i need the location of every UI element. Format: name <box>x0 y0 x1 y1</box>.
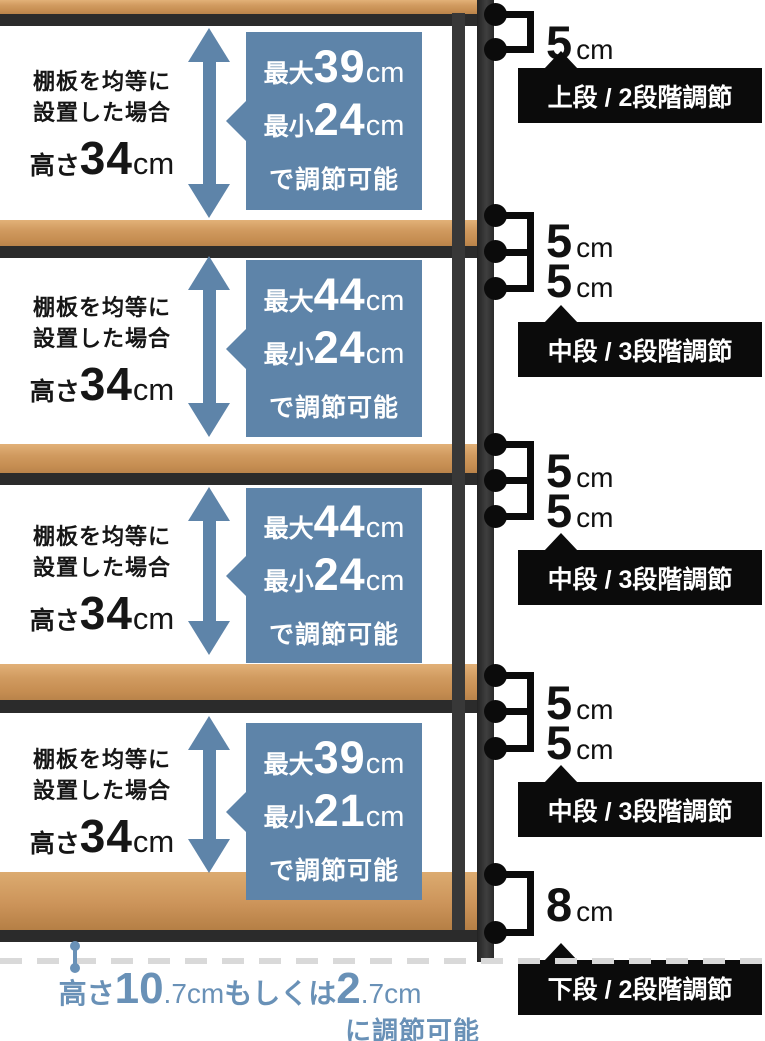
section-caption: 棚板を均等に 設置した場合 高さ34cm <box>22 744 182 871</box>
caption-line: 棚板を均等に <box>22 521 182 552</box>
height-unit: cm <box>133 372 174 407</box>
arrowhead-down-icon <box>188 184 230 218</box>
bracket-line <box>527 871 534 936</box>
gap-value: 5 <box>546 484 572 537</box>
max-height-line: 最大44cm <box>264 274 405 327</box>
height-unit: cm <box>133 601 174 636</box>
min-unit: cm <box>366 110 405 142</box>
arrowhead-up-icon <box>188 256 230 290</box>
tier-label: 下段 / 2段階調節 <box>548 970 733 1006</box>
min-value: 21 <box>314 785 366 836</box>
floor-note-connector: もしくは <box>224 978 336 1009</box>
bracket-line <box>527 212 534 292</box>
min-height-line: 最小21cm <box>264 790 405 843</box>
shelf-height-label: 高さ34cm <box>22 813 182 871</box>
adjustable-note: で調節可能 <box>269 388 399 424</box>
gap-unit: cm <box>576 502 613 533</box>
min-height-line: 最小24cm <box>264 99 405 152</box>
adjustment-info-box: 最大39cm 最小24cm で調節可能 <box>246 32 422 210</box>
height-prefix: 高さ <box>30 152 80 180</box>
tier-label-ribbon: 上段 / 2段階調節 <box>518 68 762 123</box>
bracket-line <box>527 441 534 520</box>
min-value: 24 <box>314 549 366 600</box>
caption-line: 設置した場合 <box>22 323 182 354</box>
shelf-height-label: 高さ34cm <box>22 590 182 648</box>
gap-unit: cm <box>576 34 613 65</box>
arrowhead-down-icon <box>188 839 230 873</box>
caption-line: 棚板を均等に <box>22 66 182 97</box>
pointer-notch-icon <box>226 555 247 597</box>
floor-note-value2: 2 <box>336 964 360 1013</box>
max-unit: cm <box>366 285 405 317</box>
double-arrow-icon <box>188 256 230 437</box>
tier-label: 中段 / 3段階調節 <box>548 560 733 596</box>
gap-unit: cm <box>576 734 613 765</box>
shelf-board <box>0 444 494 473</box>
shelf-height-label: 高さ34cm <box>22 361 182 419</box>
floor-adjustable-note: に調節可能 <box>345 1011 480 1041</box>
shelf-board <box>0 664 494 700</box>
max-value: 44 <box>314 496 366 547</box>
floor-note-suffix1: .7cm <box>164 978 225 1009</box>
double-arrow-icon <box>188 28 230 218</box>
max-label: 最大 <box>264 751 314 779</box>
shelf-frame-bar <box>0 930 483 942</box>
arrowhead-up-icon <box>188 716 230 750</box>
floor-note-prefix: 高さ <box>59 978 115 1009</box>
shelf-adjustment-infographic: 棚板を均等に 設置した場合 高さ34cm 最大39cm 最小24cm で調節可能… <box>0 0 765 1041</box>
height-value: 34 <box>80 358 133 410</box>
max-unit: cm <box>366 512 405 544</box>
max-label: 最大 <box>264 515 314 543</box>
min-label: 最小 <box>264 568 314 596</box>
adjustable-note: で調節可能 <box>269 851 399 887</box>
max-label: 最大 <box>264 288 314 316</box>
shelf-board <box>0 0 494 14</box>
adjustable-note: で調節可能 <box>269 615 399 651</box>
min-label: 最小 <box>264 804 314 832</box>
tier-label: 上段 / 2段階調節 <box>548 78 733 114</box>
height-prefix: 高さ <box>30 378 80 406</box>
section-caption: 棚板を均等に 設置した場合 高さ34cm <box>22 292 182 419</box>
arrowhead-down-icon <box>188 403 230 437</box>
tier-label-ribbon: 中段 / 3段階調節 <box>518 550 762 605</box>
bracket-line <box>527 11 534 53</box>
height-value: 34 <box>80 587 133 639</box>
double-arrow-icon <box>188 716 230 873</box>
pointer-notch-icon <box>226 328 247 370</box>
min-unit: cm <box>366 338 405 370</box>
arrow-shaft <box>203 748 216 841</box>
min-value: 24 <box>314 322 366 373</box>
height-prefix: 高さ <box>30 830 80 858</box>
tier-label: 中段 / 3段階調節 <box>548 792 733 828</box>
caption-line: 棚板を均等に <box>22 744 182 775</box>
caption-line: 棚板を均等に <box>22 292 182 323</box>
arrow-shaft <box>203 288 216 405</box>
max-unit: cm <box>366 57 405 89</box>
triangle-up-icon <box>544 765 578 783</box>
min-value: 24 <box>314 94 366 145</box>
max-value: 44 <box>314 269 366 320</box>
triangle-up-icon <box>544 51 578 69</box>
gap-value: 8 <box>546 878 572 931</box>
max-unit: cm <box>366 748 405 780</box>
min-label: 最小 <box>264 113 314 141</box>
gap-value: 5 <box>546 254 572 307</box>
gap-size-label: 8cm <box>546 880 613 942</box>
arrowhead-up-icon <box>188 28 230 62</box>
max-value: 39 <box>314 732 366 783</box>
shelf-board <box>0 220 494 246</box>
shelf-frame-bar <box>0 246 483 258</box>
bracket-line <box>527 672 534 752</box>
shelf-frame-bar <box>0 700 483 713</box>
floor-note-suffix2: .7cm <box>361 978 422 1009</box>
arrowhead-down-icon <box>188 621 230 655</box>
gap-unit: cm <box>576 896 613 927</box>
caption-line: 設置した場合 <box>22 775 182 806</box>
height-unit: cm <box>133 146 174 181</box>
height-unit: cm <box>133 824 174 859</box>
max-height-line: 最大39cm <box>264 737 405 790</box>
shelf-back-post <box>452 13 465 930</box>
max-height-line: 最大39cm <box>264 46 405 99</box>
max-label: 最大 <box>264 60 314 88</box>
double-arrow-icon <box>188 487 230 655</box>
pointer-notch-icon <box>226 791 247 833</box>
arrowhead-up-icon <box>188 487 230 521</box>
shelf-height-label: 高さ34cm <box>22 135 182 193</box>
tier-label-ribbon: 中段 / 3段階調節 <box>518 782 762 837</box>
arrow-shaft <box>203 519 216 623</box>
max-height-line: 最大44cm <box>264 501 405 554</box>
height-prefix: 高さ <box>30 607 80 635</box>
min-height-line: 最小24cm <box>264 554 405 607</box>
adjustment-info-box: 最大44cm 最小24cm で調節可能 <box>246 260 422 437</box>
min-unit: cm <box>366 565 405 597</box>
height-value: 34 <box>80 810 133 862</box>
height-value: 34 <box>80 132 133 184</box>
triangle-up-icon <box>544 533 578 551</box>
adjustment-info-box: 最大39cm 最小21cm で調節可能 <box>246 723 422 900</box>
section-caption: 棚板を均等に 設置した場合 高さ34cm <box>22 521 182 648</box>
gap-unit: cm <box>576 272 613 303</box>
caption-line: 設置した場合 <box>22 552 182 583</box>
min-unit: cm <box>366 801 405 833</box>
min-height-line: 最小24cm <box>264 327 405 380</box>
shelf-frame-bar <box>0 473 483 485</box>
section-caption: 棚板を均等に 設置した場合 高さ34cm <box>22 66 182 193</box>
adjustment-info-box: 最大44cm 最小24cm で調節可能 <box>246 488 422 663</box>
floor-note-value1: 10 <box>115 964 164 1013</box>
triangle-up-icon <box>544 305 578 323</box>
min-label: 最小 <box>264 341 314 369</box>
tier-label: 中段 / 3段階調節 <box>548 332 733 368</box>
shelf-frame-bar <box>0 14 483 26</box>
tier-label-ribbon: 中段 / 3段階調節 <box>518 322 762 377</box>
gap-value: 5 <box>546 716 572 769</box>
pointer-notch-icon <box>226 100 247 142</box>
max-value: 39 <box>314 41 366 92</box>
arrow-shaft <box>203 60 216 186</box>
caption-line: 設置した場合 <box>22 97 182 128</box>
adjustable-note: で調節可能 <box>269 160 399 196</box>
tier-label-ribbon: 下段 / 2段階調節 <box>518 960 762 1015</box>
floor-gap-marker-icon <box>73 946 77 968</box>
